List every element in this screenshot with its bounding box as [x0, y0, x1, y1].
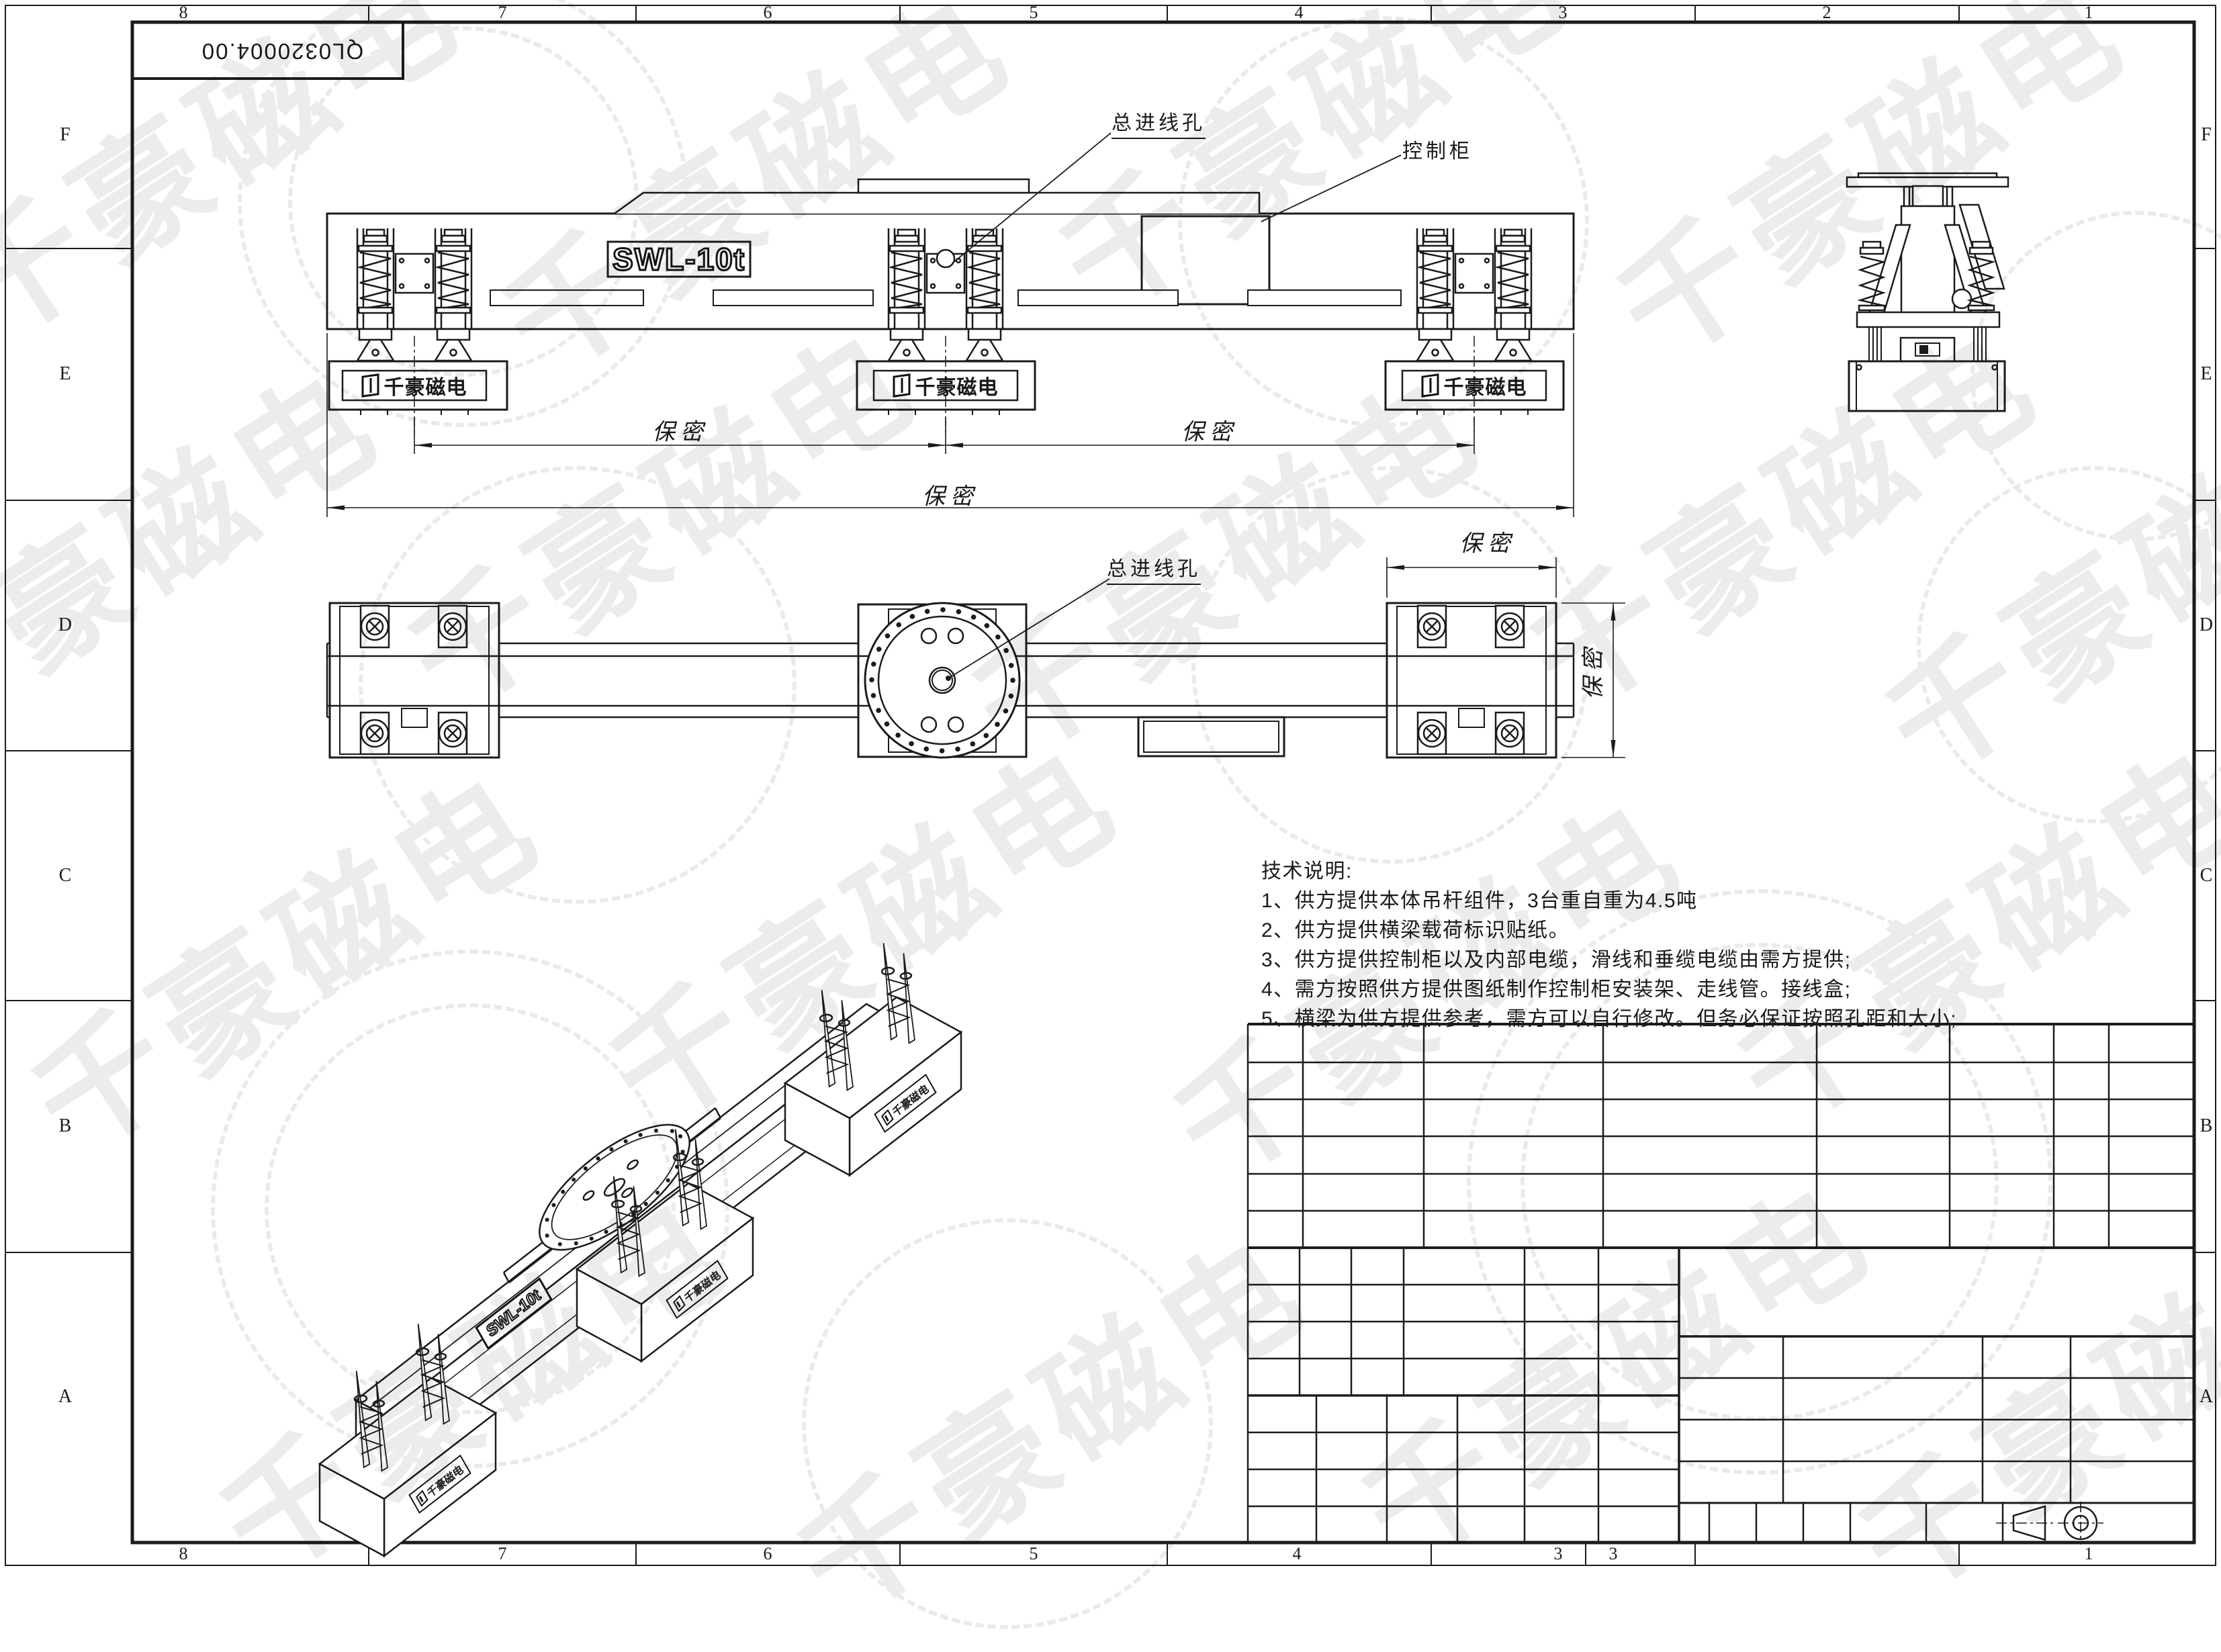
magnet-brand-center: 千豪磁电: [893, 371, 999, 400]
control-cabinet-plan: [1138, 717, 1284, 756]
tech-note-4: 4、需方按照供方提供图纸制作控制柜安装架、走线管。接线盒;: [1261, 972, 1852, 1002]
zone-number-top-1: 1: [2085, 3, 2093, 23]
zone-number-bottom-3a: 3: [1554, 1544, 1563, 1564]
spring-hanger: [1417, 228, 1453, 361]
spring-hanger: [1495, 228, 1531, 361]
zone-letter-left-c: C: [59, 865, 72, 886]
zone-letter-right-a: A: [2200, 1386, 2213, 1408]
swl-rating-front: SWL-10t: [613, 241, 745, 277]
tech-note-3: 3、供方提供控制柜以及内部电缆，滑线和垂缆电缆由需方提供;: [1261, 943, 1852, 972]
zone-number-bottom-3b: 3: [1609, 1544, 1618, 1564]
revision-table: [1248, 1248, 1679, 1543]
qianhao-logo-icon: [893, 373, 911, 398]
dim-confidential-span2: 保密: [1181, 414, 1238, 447]
zone-number-top-6: 6: [764, 3, 772, 23]
tech-note-1: 1、供方提供本体吊杆组件，3台重自重为4.5吨: [1261, 884, 1698, 913]
zone-number-top-8: 8: [179, 3, 188, 23]
zone-letter-left-d: D: [58, 614, 72, 636]
dim-confidential-plan-depth: 保密: [1575, 643, 1608, 700]
bom-table: [1248, 1024, 2194, 1248]
dim-confidential-plan-width: 保密: [1459, 525, 1516, 558]
spring-hanger: [966, 228, 1003, 361]
control-cabinet-label: 控制柜: [1402, 134, 1473, 164]
spring-hanger: [889, 228, 925, 361]
zone-number-top-2: 2: [1823, 3, 1831, 23]
zone-letter-right-b: B: [2200, 1115, 2213, 1137]
dim-confidential-span1: 保密: [652, 414, 709, 447]
title-block: [1679, 1336, 2194, 1545]
side-view: [1847, 173, 2008, 411]
zone-number-bottom-8: 8: [179, 1544, 188, 1564]
main-inlet-hole-label-plan: 总进线孔: [1107, 552, 1201, 585]
spring-hanger: [435, 228, 471, 361]
iso-magnet: [785, 997, 961, 1175]
zone-letter-right-d: D: [2200, 614, 2213, 636]
zone-number-top-4: 4: [1295, 3, 1304, 23]
zone-letter-right-f: F: [2201, 124, 2212, 146]
zone-number-bottom-7: 7: [498, 1544, 507, 1564]
zone-number-top-3: 3: [1559, 3, 1568, 23]
plan-view: [327, 557, 1625, 758]
tech-note-2: 2、供方提供横梁载荷标识贴纸。: [1261, 913, 1570, 943]
magnet-brand-right: 千豪磁电: [1422, 371, 1527, 400]
tech-note-5: 5、横梁为供方提供参考，需方可以自行修改。但务必保证按照孔距和大小;: [1261, 1002, 1957, 1031]
zone-letter-left-a: A: [58, 1386, 72, 1408]
zone-number-top-7: 7: [498, 3, 507, 23]
magnet-brand-left: 千豪磁电: [362, 371, 467, 400]
drawing-linework: [0, 0, 2221, 1571]
drawing-sheet: QL0320004.00 F E D C B A F E D C B A 8 7…: [0, 0, 2221, 1571]
projection-symbol-icon: [1996, 1502, 2103, 1545]
zone-letter-left-e: E: [59, 363, 71, 385]
zone-letter-right-e: E: [2200, 363, 2212, 385]
magnet-side: [1849, 361, 2005, 411]
isometric-view: [320, 941, 961, 1556]
qianhao-logo-icon: [362, 373, 379, 398]
main-inlet-hole: [937, 250, 954, 267]
zone-number-bottom-6: 6: [764, 1544, 772, 1564]
zone-letter-right-c: C: [2200, 865, 2213, 886]
part-number: QL0320004.00: [201, 38, 363, 64]
zone-number-top-5: 5: [1030, 3, 1038, 23]
tech-notes-title: 技术说明:: [1261, 854, 1353, 884]
spring-hanger: [357, 228, 394, 361]
zone-letter-left-b: B: [59, 1115, 72, 1137]
zone-number-bottom-5: 5: [1030, 1544, 1038, 1564]
center-flange: [865, 603, 1019, 758]
qianhao-logo-icon: [1422, 373, 1439, 398]
zone-number-bottom-1: 1: [2085, 1544, 2093, 1564]
main-inlet-hole-label-front: 总进线孔: [1112, 106, 1206, 139]
iso-magnet: [320, 1378, 496, 1556]
zone-number-bottom-4: 4: [1293, 1544, 1302, 1564]
dim-confidential-overall: 保密: [922, 478, 979, 511]
zone-letter-left-f: F: [60, 124, 71, 146]
front-view: [327, 133, 1574, 517]
